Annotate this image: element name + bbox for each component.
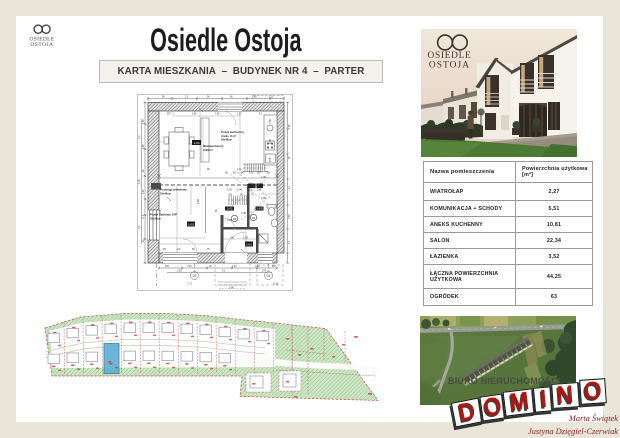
svg-text:9.1: 9.1 — [138, 225, 141, 229]
svg-text:2.48: 2.48 — [261, 176, 266, 179]
svg-text:278: 278 — [165, 266, 170, 268]
svg-text:1-02: 1-02 — [226, 207, 232, 211]
svg-text:1-04: 1-04 — [193, 141, 199, 145]
svg-text:2.48: 2.48 — [143, 144, 145, 149]
svg-text:75: 75 — [207, 248, 210, 251]
svg-text:9.1: 9.1 — [222, 271, 226, 273]
svg-text:3.06: 3.06 — [192, 114, 197, 116]
svg-text:3.06: 3.06 — [143, 119, 145, 124]
svg-text:03: 03 — [233, 217, 237, 221]
svg-text:1.88: 1.88 — [197, 199, 200, 204]
svg-text:9x28cm: 9x28cm — [203, 148, 213, 152]
svg-text:Pokój kuchenny: Pokój kuchenny — [221, 130, 244, 134]
svg-text:OSTOJA: OSTOJA — [30, 42, 53, 48]
svg-text:96: 96 — [241, 172, 244, 175]
svg-text:2.96: 2.96 — [269, 139, 272, 144]
svg-text:Aneks 13 m²: Aneks 13 m² — [221, 134, 236, 138]
svg-text:807: 807 — [257, 172, 262, 175]
svg-text:60: 60 — [233, 172, 236, 175]
svg-text:1-05: 1-05 — [256, 207, 262, 211]
svg-text:1.11: 1.11 — [249, 172, 254, 175]
svg-text:7.66: 7.66 — [215, 114, 220, 116]
svg-text:01: 01 — [267, 274, 271, 278]
svg-text:Podciąg żelbetowy: Podciąg żelbetowy — [160, 188, 187, 192]
svg-text:1.50: 1.50 — [243, 237, 248, 240]
svg-text:2.46: 2.46 — [229, 287, 234, 290]
svg-text:OSTOJA: OSTOJA — [429, 61, 470, 71]
svg-text:7.66: 7.66 — [187, 266, 192, 268]
svg-text:1-01: 1-01 — [246, 243, 252, 247]
svg-text:2.48: 2.48 — [241, 212, 246, 215]
svg-text:3.06: 3.06 — [289, 214, 291, 219]
svg-text:29x48cm: 29x48cm — [221, 138, 233, 142]
svg-text:3.21: 3.21 — [247, 189, 252, 192]
svg-text:25: 25 — [163, 248, 166, 251]
svg-text:Pudeł kablowy 24P: Pudeł kablowy 24P — [150, 213, 177, 217]
svg-text:9.1: 9.1 — [289, 240, 291, 244]
svg-text:7.66: 7.66 — [265, 172, 270, 175]
svg-text:1.88: 1.88 — [289, 124, 291, 129]
svg-text:11.2: 11.2 — [143, 214, 145, 219]
svg-text:2.96: 2.96 — [227, 219, 232, 222]
svg-text:807: 807 — [167, 114, 172, 116]
svg-text:04: 04 — [252, 216, 256, 220]
svg-text:1.50: 1.50 — [177, 271, 182, 273]
svg-text:02: 02 — [193, 274, 197, 278]
svg-text:A.32: A.32 — [273, 282, 279, 286]
svg-text:1.88: 1.88 — [261, 197, 266, 200]
svg-text:96: 96 — [240, 194, 243, 197]
svg-text:7.66: 7.66 — [252, 97, 257, 99]
svg-text:1.20: 1.20 — [138, 179, 141, 184]
svg-text:2.96: 2.96 — [143, 189, 145, 194]
svg-text:90: 90 — [229, 194, 232, 197]
svg-text:25x46cm: 25x46cm — [160, 192, 172, 196]
svg-text:2.0: 2.0 — [177, 248, 181, 251]
svg-text:OSIEDLE: OSIEDLE — [428, 51, 472, 61]
svg-text:1.50: 1.50 — [227, 189, 232, 192]
svg-text:7.66: 7.66 — [269, 119, 272, 124]
svg-text:2.96: 2.96 — [237, 189, 242, 192]
svg-text:96: 96 — [289, 156, 291, 159]
svg-text:3.21: 3.21 — [237, 114, 242, 116]
svg-text:278: 278 — [269, 157, 272, 162]
svg-text:1.11: 1.11 — [269, 97, 274, 99]
svg-text:278: 278 — [159, 209, 162, 214]
svg-text:90: 90 — [192, 248, 195, 251]
svg-text:75: 75 — [251, 194, 254, 197]
svg-text:278: 278 — [257, 189, 262, 192]
svg-text:7.71: 7.71 — [187, 283, 192, 286]
svg-text:90: 90 — [207, 168, 210, 171]
svg-text:90: 90 — [215, 209, 218, 212]
svg-text:1-03: 1-03 — [188, 223, 194, 227]
svg-text:96: 96 — [143, 169, 145, 172]
svg-text:96: 96 — [225, 172, 228, 175]
svg-text:25x38cm: 25x38cm — [150, 217, 162, 221]
svg-text:9.1: 9.1 — [259, 114, 263, 116]
svg-text:9.1: 9.1 — [289, 185, 291, 189]
svg-text:2.0: 2.0 — [138, 135, 141, 139]
svg-text:Blat kuchenny: Blat kuchenny — [203, 144, 224, 148]
svg-text:807: 807 — [272, 266, 277, 268]
svg-text:90: 90 — [209, 266, 212, 268]
svg-text:1.20: 1.20 — [255, 266, 260, 268]
svg-text:1.20: 1.20 — [232, 266, 237, 268]
svg-text:1.11: 1.11 — [237, 168, 242, 171]
